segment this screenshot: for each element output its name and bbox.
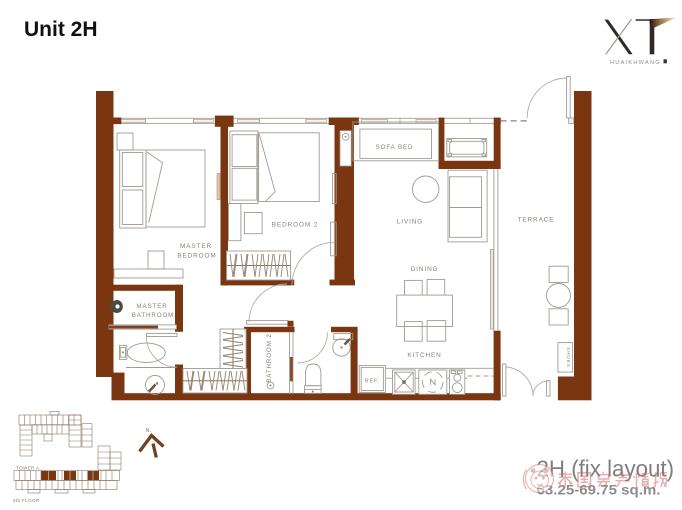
svg-text:TOWER A: TOWER A [16, 466, 39, 471]
svg-text:N.: N. [146, 428, 152, 434]
svg-text:MASTER: MASTER [136, 303, 167, 310]
svg-text:TERRACE: TERRACE [518, 217, 555, 224]
svg-text:6th FLOOR: 6th FLOOR [13, 498, 40, 503]
svg-text:KITCHEN: KITCHEN [407, 352, 441, 359]
svg-text:BEDROOM 2: BEDROOM 2 [272, 222, 318, 229]
svg-text:LIVING: LIVING [397, 219, 423, 226]
svg-text:BEDROOM: BEDROOM [177, 253, 216, 260]
svg-text:SHOES: SHOES [566, 347, 571, 368]
svg-text:BATHROOM: BATHROOM [132, 312, 175, 319]
svg-text:BATHROOM 2: BATHROOM 2 [266, 333, 273, 382]
svg-text:REF.: REF. [365, 378, 380, 384]
svg-text:Unit 2H: Unit 2H [24, 18, 98, 41]
svg-text:HUAIKHWANG: HUAIKHWANG [610, 60, 661, 66]
svg-text:SOFA BED: SOFA BED [376, 144, 414, 151]
svg-text:DINING: DINING [411, 266, 439, 273]
svg-text:MASTER: MASTER [180, 243, 212, 250]
svg-text:2H (fix layout): 2H (fix layout) [537, 456, 675, 482]
